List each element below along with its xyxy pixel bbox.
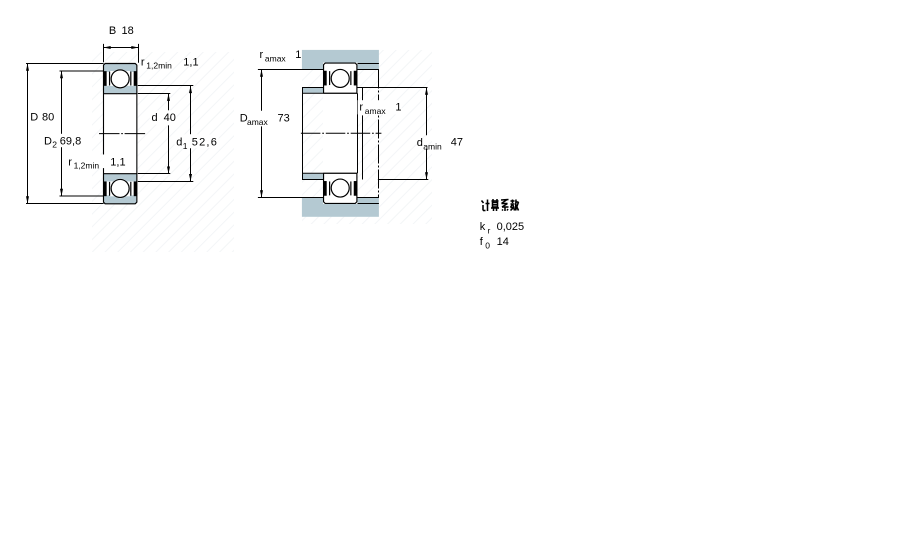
svg-text:18: 18 [122, 25, 134, 37]
svg-text:r: r [488, 225, 491, 235]
svg-text:r: r [141, 56, 145, 68]
svg-text:1,2min: 1,2min [146, 60, 172, 70]
svg-text:1: 1 [295, 49, 301, 61]
svg-text:d: d [176, 137, 182, 149]
svg-text:r: r [359, 101, 363, 113]
svg-text:r: r [260, 49, 264, 61]
svg-text:0,025: 0,025 [497, 221, 525, 233]
svg-text:47: 47 [451, 136, 463, 148]
svg-text:d: d [417, 137, 423, 149]
svg-text:amax: amax [365, 106, 387, 116]
svg-text:1: 1 [395, 101, 401, 113]
svg-text:0: 0 [485, 240, 490, 250]
svg-text:1: 1 [183, 141, 188, 151]
svg-text:1,1: 1,1 [110, 157, 125, 169]
svg-text:1,2min: 1,2min [74, 160, 100, 170]
svg-text:2: 2 [52, 139, 57, 149]
svg-text:1,1: 1,1 [183, 57, 198, 69]
svg-text:52,6: 52,6 [192, 137, 218, 149]
svg-text:amax: amax [265, 53, 287, 63]
svg-text:D: D [30, 112, 38, 124]
svg-text:40: 40 [164, 112, 176, 124]
svg-text:14: 14 [497, 236, 509, 248]
svg-text:r: r [68, 156, 72, 168]
svg-text:80: 80 [42, 112, 54, 124]
svg-text:D: D [44, 135, 52, 147]
svg-text:k: k [480, 221, 486, 233]
svg-text:d: d [152, 112, 158, 124]
svg-text:73: 73 [278, 113, 290, 125]
svg-text:B: B [109, 25, 116, 37]
svg-text:amin: amin [423, 142, 442, 152]
svg-text:69,8: 69,8 [60, 135, 81, 147]
svg-text:amax: amax [247, 117, 269, 127]
